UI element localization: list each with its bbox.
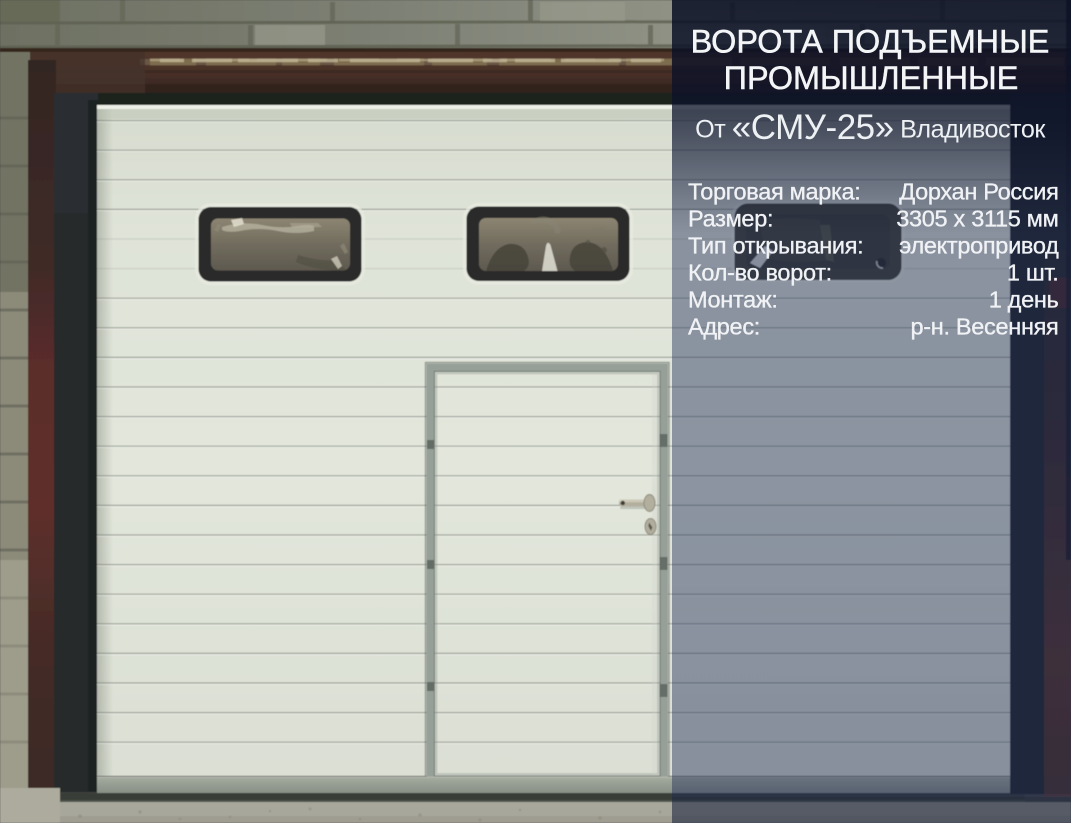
svg-text:1 шт.: 1 шт. <box>1007 260 1059 286</box>
svg-text:ПРОМЫШЛЕННЫЕ: ПРОМЫШЛЕННЫЕ <box>724 60 1019 96</box>
svg-text:Монтаж:: Монтаж: <box>688 287 778 313</box>
svg-text:электропривод: электропривод <box>899 233 1059 259</box>
svg-text:1 день: 1 день <box>989 287 1059 313</box>
svg-text:р-н. Весенняя: р-н. Весенняя <box>910 314 1058 340</box>
svg-text:Кол-во ворот:: Кол-во ворот: <box>688 260 832 286</box>
svg-text:Торговая марка:: Торговая марка: <box>688 179 861 205</box>
svg-text:Тип открывания:: Тип открывания: <box>688 233 863 259</box>
svg-text:Адрес:: Адрес: <box>688 314 760 340</box>
svg-text:3305 х 3115 мм: 3305 х 3115 мм <box>896 206 1058 232</box>
svg-text:ВОРОТА ПОДЪЕМНЫЕ: ВОРОТА ПОДЪЕМНЫЕ <box>691 24 1050 60</box>
svg-text:Размер:: Размер: <box>688 206 773 232</box>
svg-text:Дорхан Россия: Дорхан Россия <box>899 179 1058 205</box>
